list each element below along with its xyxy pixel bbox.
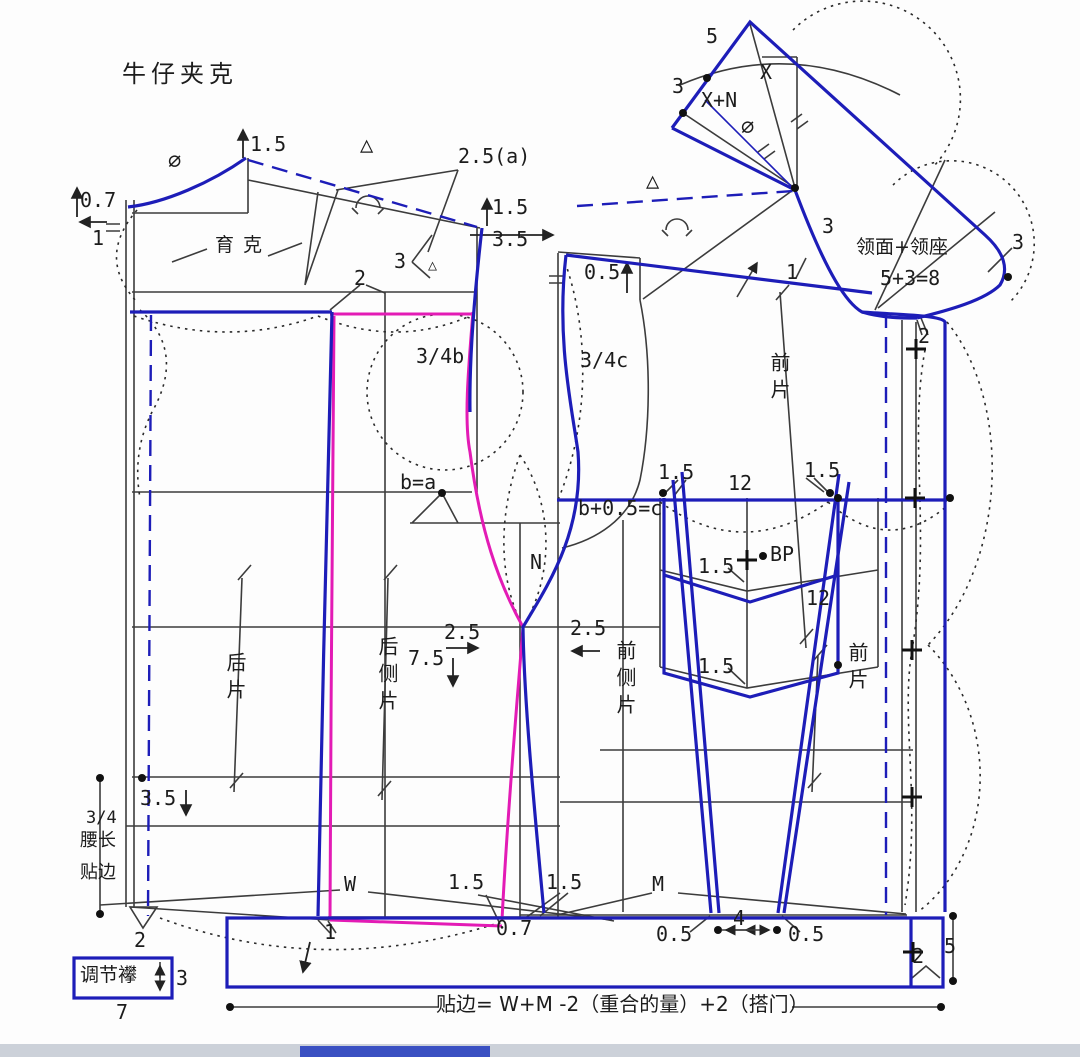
label-hem-formula: 贴边= W+M -2（重合的量）+2（搭门） (436, 994, 809, 1015)
dim-pocket-height: 12 (806, 588, 830, 609)
dim-hem-15b: 1.5 (546, 872, 582, 893)
dim-collar-5: 5 (706, 26, 718, 47)
dim-snp-right: 3.5 (492, 229, 528, 250)
label-front-piece-lower: 前片 (846, 642, 867, 696)
dim-back-rise: 0.7 (80, 190, 116, 211)
dim-shoulder-a: 2.5(a) (458, 146, 530, 167)
label-waist-length: 腰长 (80, 832, 116, 851)
label-armhole-b: 3/4b (416, 346, 464, 367)
bottom-scrollbar-thumb[interactable] (300, 1046, 490, 1057)
dim-band-height: 5 (944, 936, 956, 957)
dim-tab-height: 3 (176, 968, 188, 989)
label-front-piece-upper: 前片 (768, 352, 789, 406)
triangle-mark-front: △ (646, 170, 659, 193)
label-waist-fraction: 3/4 (86, 810, 117, 828)
dim-vent-4: 4 (733, 908, 745, 929)
dim-front-shoulder: 0.5 (584, 262, 620, 283)
bottom-scrollbar-track[interactable] (0, 1044, 1080, 1057)
label-n: N (530, 552, 542, 573)
dim-hem-15a: 1.5 (448, 872, 484, 893)
pattern-draft-canvas: 牛仔夹克 0.7 1 1.5 ∅ 育克 △ 2.5(a) 1.5 3.5 3 2… (0, 0, 1080, 1057)
dim-pocket-right: 1.5 (804, 460, 840, 481)
dim-yoke-drop: 2 (354, 268, 366, 289)
label-facing-left: 贴边 (80, 864, 116, 883)
phi-mark-collar: ∅ (741, 116, 754, 139)
dim-pocket-bottom: 1.5 (698, 656, 734, 677)
dim-collar-stand: 3 (822, 216, 834, 237)
dim-waist-down: 7.5 (408, 648, 444, 669)
label-b-equals-a: b=a (400, 472, 436, 493)
dim-collar-3: 3 (672, 76, 684, 97)
dim-waist-left: 2.5 (570, 618, 606, 639)
label-collar-xn: X+N (701, 90, 737, 111)
dimension-arrows (77, 130, 627, 972)
label-m: M (652, 874, 664, 895)
triangle-mark-back: △ (360, 134, 373, 157)
label-armhole-c: 3/4c (580, 350, 628, 371)
label-collar-x: X (760, 62, 772, 83)
phi-mark-back: ∅ (168, 150, 181, 173)
label-b-plus: b+0.5=c (578, 498, 662, 519)
label-bp: BP (770, 544, 794, 565)
dim-tab-width: 7 (116, 1002, 128, 1023)
dim-back-hem-notch: 2 (134, 930, 146, 951)
dim-vent-05a: 0.5 (656, 924, 692, 945)
dim-pocket-left: 1.5 (658, 462, 694, 483)
dim-neck-rise: 1.5 (250, 134, 286, 155)
dim-back-neck: 3 (394, 251, 406, 272)
label-collar-name: 领面+领座 (856, 238, 948, 258)
dim-band-width: 2 (912, 946, 924, 967)
dim-hem-drop: 3.5 (140, 788, 176, 809)
label-yoke: 育克 (215, 236, 271, 256)
label-back-side-piece: 后侧片 (376, 636, 397, 717)
style-seam-magenta (330, 312, 523, 926)
dim-snp-up: 1.5 (492, 197, 528, 218)
dim-flap-depth: 1.5 (698, 556, 734, 577)
dim-back-offset: 1 (92, 228, 104, 249)
label-back-piece: 后片 (224, 652, 245, 706)
dim-hem-gap: 0.7 (496, 918, 532, 939)
pattern-lines (0, 0, 1080, 1057)
label-w: W (344, 874, 356, 895)
dim-hem-1: 1 (324, 922, 336, 943)
page-title: 牛仔夹克 (122, 62, 238, 87)
dim-front-neck: 2 (918, 326, 930, 347)
dim-pocket-width: 12 (728, 473, 752, 494)
label-collar-sum: 5+3=8 (880, 268, 940, 289)
construction-lines (100, 24, 1012, 1007)
pattern-seam-blue (74, 22, 1005, 998)
dim-waist-right: 2.5 (444, 622, 480, 643)
label-adjust-tab: 调节襻 (80, 966, 137, 986)
cross-markers (737, 339, 926, 962)
dim-collar-point: 3 (1012, 232, 1024, 253)
triangle-mark-small: △ (428, 258, 437, 274)
label-front-side-piece: 前侧片 (614, 640, 635, 721)
dim-snp-1: 1 (786, 262, 798, 283)
dim-vent-05b: 0.5 (788, 924, 824, 945)
